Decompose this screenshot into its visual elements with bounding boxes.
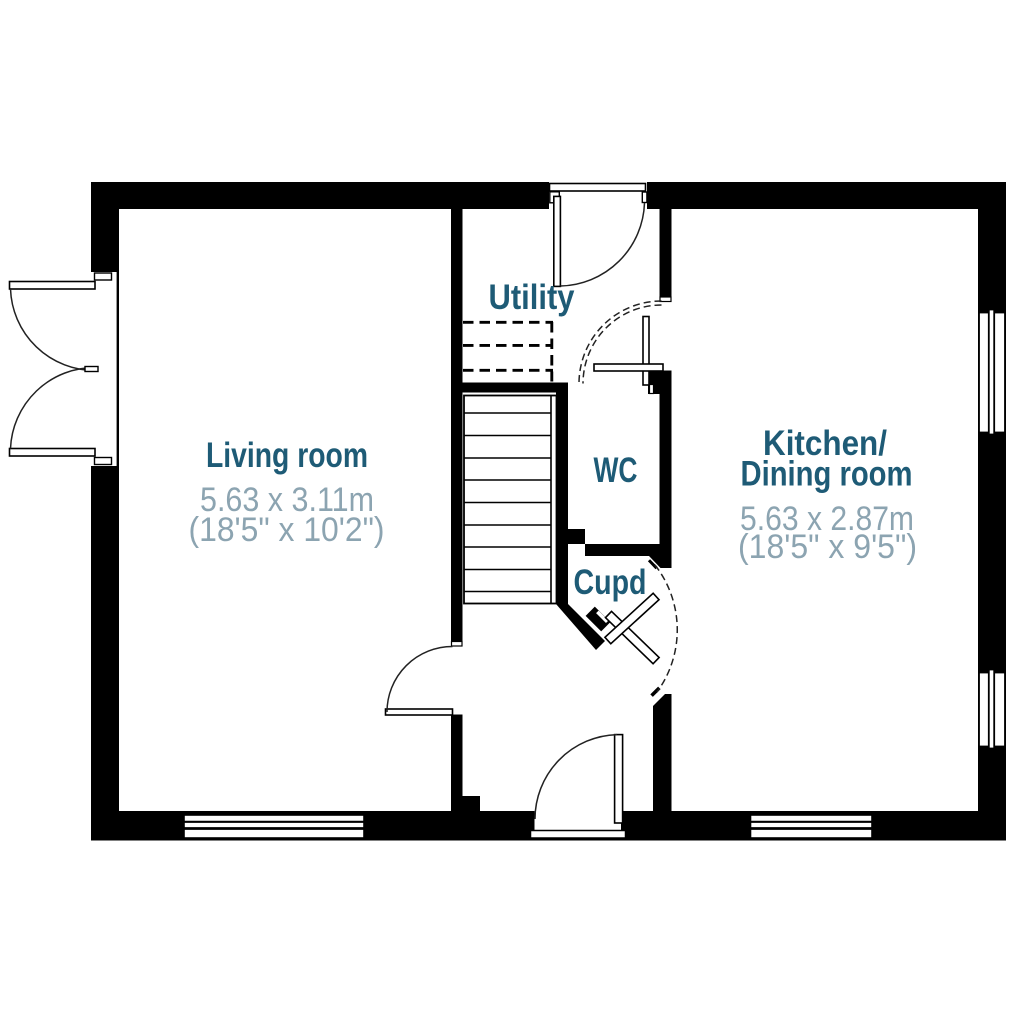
svg-text:Cupd: Cupd (574, 563, 647, 602)
svg-text:WC: WC (594, 451, 638, 490)
svg-text:Dining room: Dining room (741, 455, 913, 494)
svg-text:(18'5" x 9'5"): (18'5" x 9'5") (738, 528, 917, 566)
svg-text:Utility: Utility (489, 278, 575, 317)
svg-text:Living room: Living room (206, 436, 368, 475)
svg-text:(18'5" x 10'2"): (18'5" x 10'2") (189, 511, 385, 549)
